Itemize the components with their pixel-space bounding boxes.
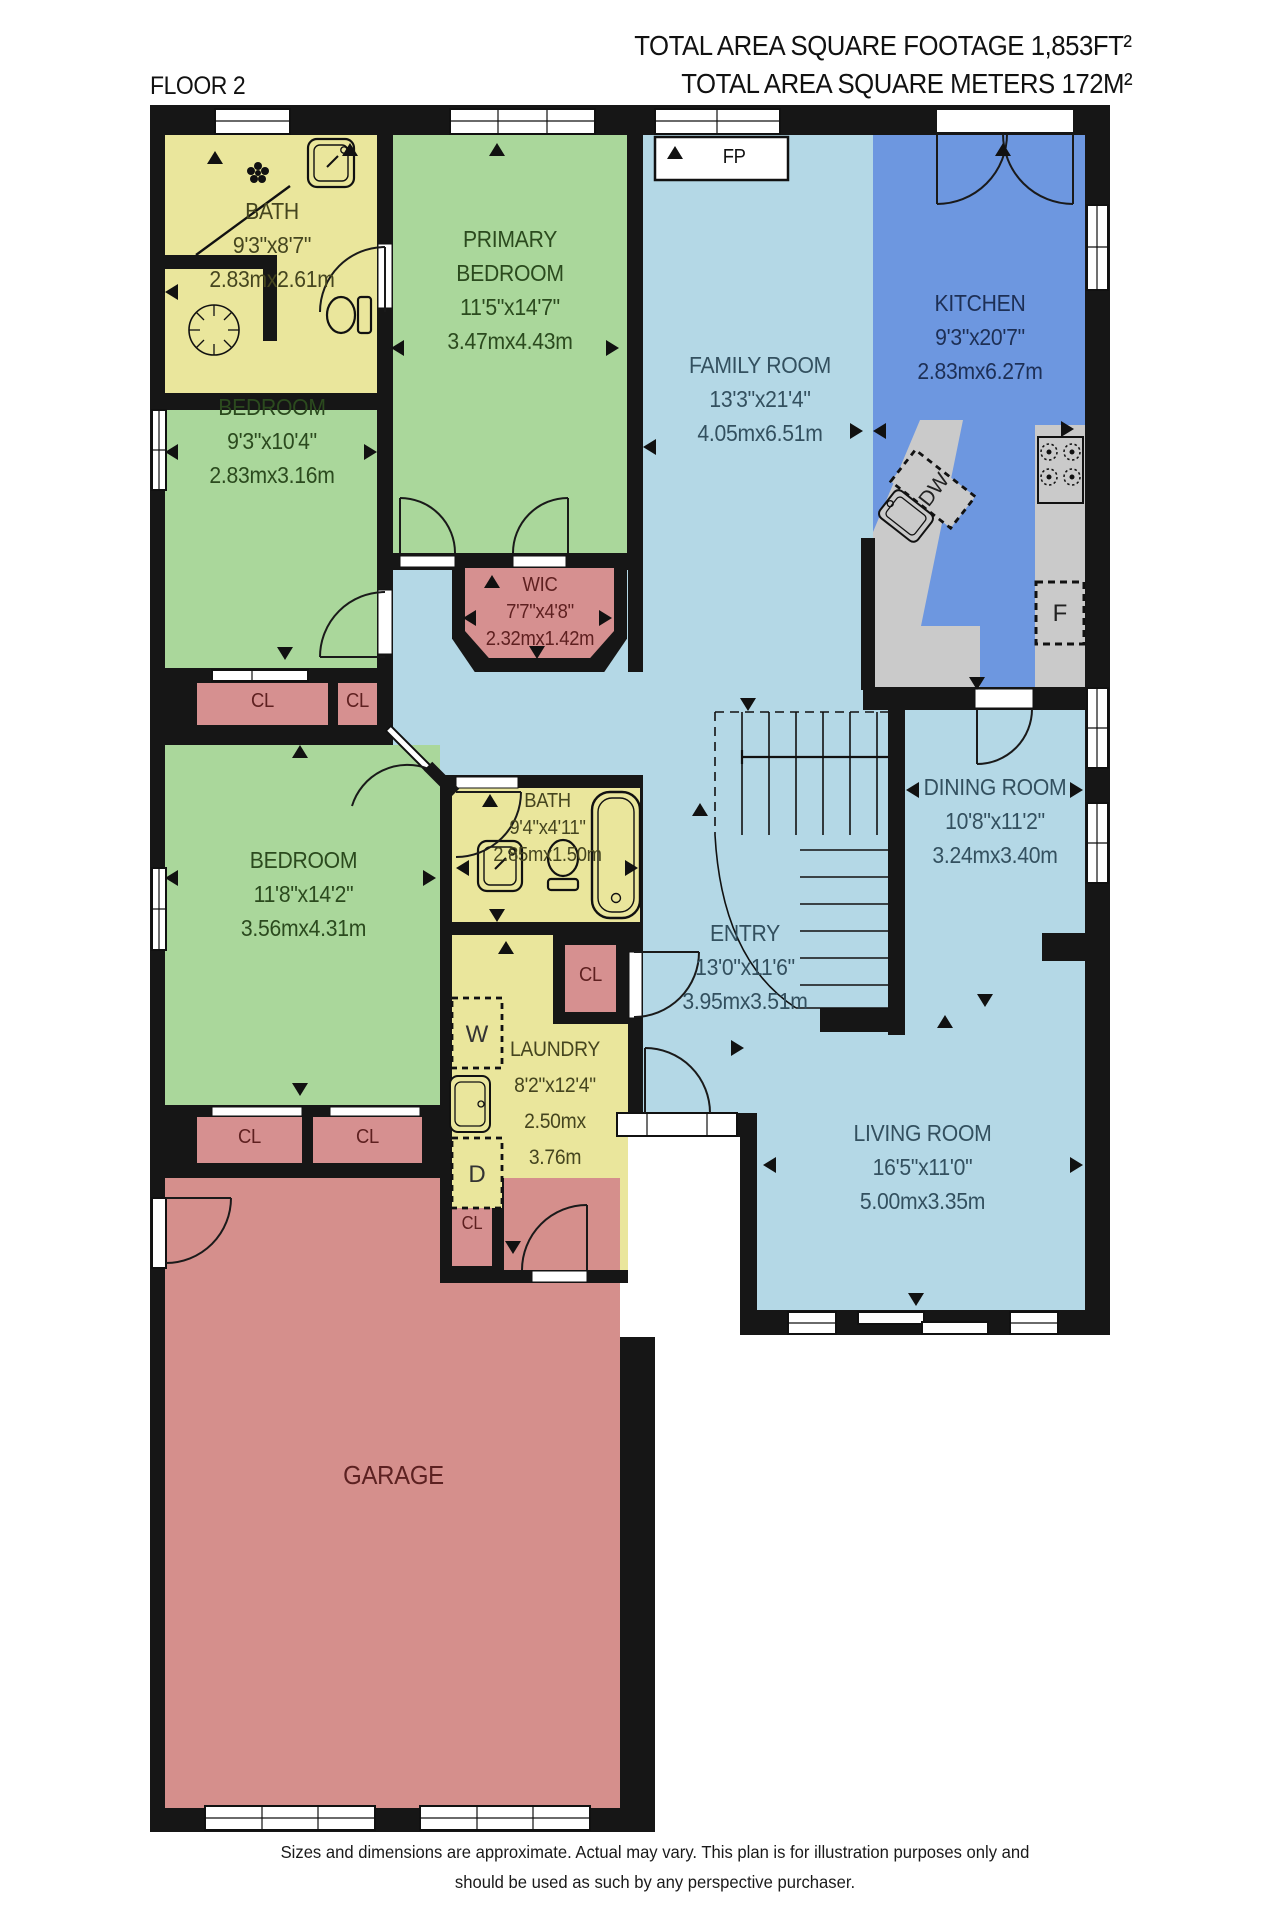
floor-plan-page: TOTAL AREA SQUARE FOOTAGE 1,853FT² TOTAL… (0, 0, 1280, 1920)
laundry-label: LAUNDRY 8'2"x12'4" 2.50mx 3.76m (477, 1032, 633, 1176)
living-room-label: LIVING ROOM 16'5"x11'0" 5.00mx3.35m (773, 1116, 1072, 1218)
primary-bedroom-label: PRIMARY BEDROOM 11'5"x14'7" 3.47mx4.43m (421, 222, 599, 358)
bath2-label: BATH 9'4"x4'11" 2.85mx1.50m (462, 788, 632, 869)
total-area-sqm: TOTAL AREA SQUARE METERS 172M² (681, 68, 1132, 100)
total-area-sqft: TOTAL AREA SQUARE FOOTAGE 1,853FT² (635, 30, 1132, 62)
dining-room-label: DINING ROOM 10'8"x11'2" 3.24mx3.40m (912, 770, 1078, 872)
wic-label: WIC 7'7"x4'8" 2.32mx1.42m (471, 572, 609, 653)
closet3-label: CL (201, 1126, 298, 1148)
garage-floor (165, 1178, 620, 1808)
garage-label: GARAGE (185, 1460, 602, 1491)
closet4-label: CL (317, 1126, 417, 1148)
fireplace-label: FP (667, 146, 783, 169)
footer-disclaimer-line2: should be used as such by any perspectiv… (47, 1872, 1263, 1893)
entry-label: ENTRY 13'0"x11'6" 3.95mx3.51m (658, 916, 833, 1018)
footer-disclaimer-line1: Sizes and dimensions are approximate. Ac… (47, 1842, 1263, 1863)
closet1-label: CL (202, 690, 323, 712)
kitchen-label: KITCHEN 9'3"x20'7" 2.83mx6.27m (883, 286, 1076, 388)
bath1-label: BATH 9'3"x8'7" 2.83mx2.61m (175, 194, 368, 296)
closet-entry-label: CL (556, 964, 625, 986)
bedroom2-label: BEDROOM 11'8"x14'2" 3.56mx4.31m (178, 843, 429, 945)
closet2-label: CL (332, 690, 383, 712)
floor-label: FLOOR 2 (150, 72, 245, 101)
kitchen-floor (873, 135, 1085, 687)
closet5-label: CL (446, 1212, 498, 1234)
hallway-gap-floor (628, 672, 643, 775)
front-porch (615, 1137, 740, 1337)
bedroom1-label: BEDROOM 9'3"x10'4" 2.83mx3.16m (175, 390, 368, 492)
family-room-label: FAMILY ROOM 13'3"x21'4" 4.05mx6.51m (654, 348, 866, 450)
